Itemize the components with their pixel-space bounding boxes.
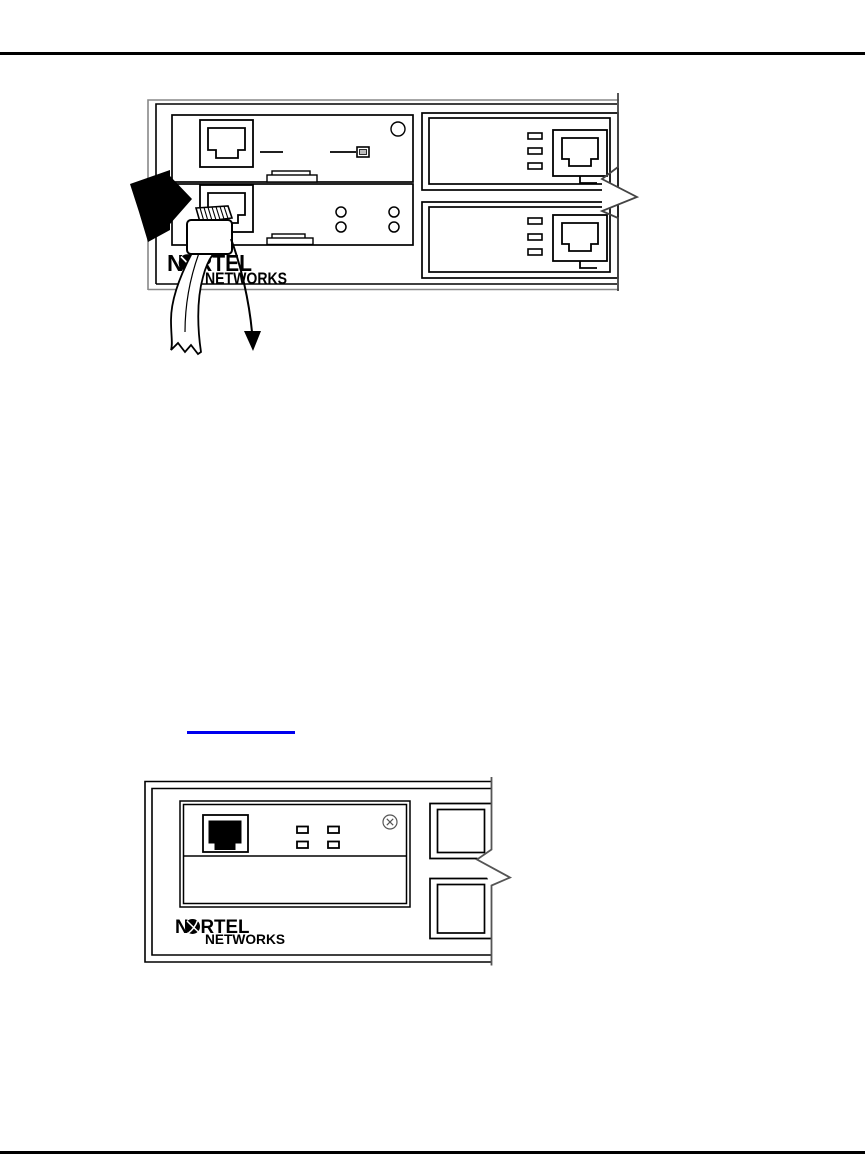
module-leds <box>528 218 542 255</box>
bottom-slot-leds <box>336 207 399 232</box>
module-rj45-jack <box>553 130 607 183</box>
right-module-top <box>422 113 618 190</box>
rj45-plug <box>187 206 232 254</box>
globe-icon <box>185 919 200 934</box>
status-led <box>357 147 369 157</box>
figure-cable-connection-drawing: N RTEL NETWORKS <box>0 0 700 380</box>
nortel-networks-logo: N RTEL NETWORKS <box>175 917 285 947</box>
right-module-bottom <box>430 879 492 939</box>
bottom-slot-handle <box>267 234 313 245</box>
top-slot-rj45-jack <box>200 120 253 167</box>
logo-text-networks: NETWORKS <box>205 270 287 288</box>
figure-module-front-panel-drawing: N RTEL NETWORKS <box>0 760 560 980</box>
insertion-arrow-icon <box>130 170 192 242</box>
module-panel <box>180 801 410 907</box>
chassis-frame <box>145 782 492 963</box>
screw-icon <box>383 815 397 829</box>
module-rj45-jack <box>553 215 607 268</box>
screw-icon <box>391 122 405 136</box>
led-indicators <box>297 827 339 849</box>
document-page: N RTEL NETWORKS <box>0 0 865 1162</box>
break-tear-mask <box>477 860 510 886</box>
right-module-top <box>430 804 492 859</box>
hyperlink-underline[interactable] <box>187 731 295 735</box>
top-slot-handle <box>267 171 317 182</box>
module-leds <box>528 133 542 169</box>
rj45-jack <box>203 815 248 852</box>
logo-text-networks: NETWORKS <box>205 931 285 947</box>
right-module-bottom <box>422 202 618 278</box>
bottom-rule <box>0 1151 865 1154</box>
